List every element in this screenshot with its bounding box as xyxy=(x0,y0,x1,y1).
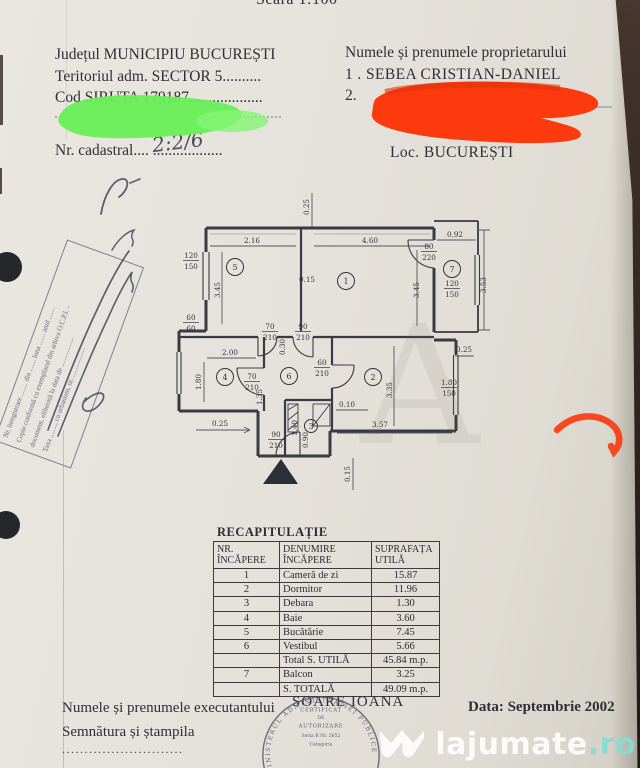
svg-text:1.35: 1.35 xyxy=(255,389,264,405)
table-cell: 11.96 xyxy=(372,583,440,597)
table-cell: Balcon xyxy=(280,668,372,682)
svg-text:4.60: 4.60 xyxy=(362,236,378,245)
faint-watermark-letter: A xyxy=(360,290,479,482)
table-cell: 3 xyxy=(214,597,280,611)
table-row: 6Vestibul5.66 xyxy=(214,640,440,654)
svg-text:0.15: 0.15 xyxy=(343,466,352,482)
table-cell: 4 xyxy=(214,611,280,625)
room-number: 7 xyxy=(444,261,461,278)
svg-text:7: 7 xyxy=(449,265,454,274)
cadastral-label: Nr. cadastral.... xyxy=(55,142,153,159)
col-header-suprafata: SUPRAFAȚAUTILĂ xyxy=(372,542,440,569)
dimension-label: 60210 xyxy=(314,358,330,378)
table-cell: Baie xyxy=(280,611,372,625)
svg-text:0.90: 0.90 xyxy=(301,432,310,448)
table-row: 4Baie3.60 xyxy=(214,611,440,625)
owner-2: 2. xyxy=(345,85,567,107)
svg-text:0.30: 0.30 xyxy=(278,339,287,355)
dimension-label: 0.92 xyxy=(447,230,463,239)
svg-text:DE: DE xyxy=(317,715,324,721)
table-cell: 2 xyxy=(214,583,280,597)
svg-text:0.92: 0.92 xyxy=(447,230,463,239)
svg-text:210: 210 xyxy=(263,333,277,342)
svg-text:Seria B Nr. 2652: Seria B Nr. 2652 xyxy=(302,733,341,739)
svg-text:4: 4 xyxy=(222,373,227,382)
table-cell: 3.60 xyxy=(372,611,440,625)
svg-text:1.80: 1.80 xyxy=(194,374,203,390)
table-cell xyxy=(214,654,280,668)
dimension-label: 0.25 xyxy=(302,199,311,215)
table-cell: Dormitor xyxy=(280,583,372,597)
dimension-label: 90210 xyxy=(295,322,311,342)
svg-text:2.16: 2.16 xyxy=(244,236,260,245)
svg-text:150: 150 xyxy=(184,262,198,271)
table-cell: 1.30 xyxy=(372,597,440,611)
svg-text:120: 120 xyxy=(184,251,198,260)
header-right: Numele și prenumele proprietarului 1 . S… xyxy=(345,42,567,107)
date-label: Data: Septembrie 2002 xyxy=(468,699,615,716)
scale-label: Scara 1:100 xyxy=(256,0,337,9)
svg-text:AUTORIZARE: AUTORIZARE xyxy=(298,724,344,730)
dimension-label: 0.15 xyxy=(343,466,352,482)
col-header-denumire: DENUMIREÎNCĂPERE xyxy=(280,542,372,569)
dimension-label: 80220 xyxy=(421,242,437,262)
table-row: Total S. UTILĂ45.84 m.p. xyxy=(214,654,440,668)
siruta-line: Cod SIRUTA 179187................... xyxy=(55,87,275,109)
entrance-triangle-marker xyxy=(263,459,298,484)
table-cell: 1 xyxy=(214,569,280,583)
svg-text:0.10: 0.10 xyxy=(339,400,355,409)
table-cell: Debara xyxy=(280,597,372,611)
paper-edge-shadow xyxy=(0,168,2,194)
table-cell: Bucătărie xyxy=(280,625,372,639)
svg-text:0.25: 0.25 xyxy=(302,199,311,215)
room-number: 5 xyxy=(227,259,244,276)
dimension-label: 3.53 xyxy=(479,277,488,293)
dimension-label: 1.40 xyxy=(290,420,299,436)
svg-text:70: 70 xyxy=(265,322,275,331)
watermark-text: lajumate.ro xyxy=(435,727,636,762)
table-cell: 5.66 xyxy=(372,640,440,654)
dimension-label: 70210 xyxy=(262,322,278,342)
svg-text:70: 70 xyxy=(247,372,257,381)
site-watermark: lajumate.ro xyxy=(377,726,636,762)
table-cell: 7 xyxy=(214,668,280,682)
svg-text:3: 3 xyxy=(308,422,313,431)
room-number: 6 xyxy=(281,368,298,385)
svg-text:1.40: 1.40 xyxy=(290,420,299,436)
dimension-label: 1.80 xyxy=(194,374,203,390)
table-cell: 45.84 m.p. xyxy=(372,654,440,668)
owner-name: 1 . SEBEA CRISTIAN-DANIEL xyxy=(345,64,567,86)
table-cell: 3.25 xyxy=(372,668,440,682)
col-header-nr: NR.ÎNCĂPERE xyxy=(214,542,280,569)
paper-edge-shadow xyxy=(0,55,3,125)
dimension-label: 0.15 xyxy=(299,275,315,284)
svg-text:1: 1 xyxy=(343,277,348,286)
dimension-label: 0.25 xyxy=(212,419,228,428)
svg-text:3.53: 3.53 xyxy=(479,277,488,293)
svg-text:80: 80 xyxy=(424,242,434,251)
svg-text:210: 210 xyxy=(296,333,310,342)
svg-text:90: 90 xyxy=(298,322,308,331)
recap-table: NR.ÎNCĂPERE DENUMIREÎNCĂPERE SUPRAFAȚAUT… xyxy=(213,541,440,697)
table-cell: 5 xyxy=(214,625,280,639)
room-number: 1 xyxy=(338,273,355,290)
owner-label: Numele și prenumele proprietarului xyxy=(345,42,567,64)
svg-text:60: 60 xyxy=(186,324,196,333)
svg-text:2.00: 2.00 xyxy=(222,348,238,357)
svg-text:60: 60 xyxy=(317,358,327,367)
svg-text:90: 90 xyxy=(271,430,281,439)
locality: Loc. BUCUREȘTI xyxy=(390,144,514,162)
svg-text:CERTIFICAT: CERTIFICAT xyxy=(300,707,341,713)
table-row: 7Balcon3.25 xyxy=(214,668,440,682)
room-number: 4 xyxy=(217,369,234,386)
svg-text:60: 60 xyxy=(186,313,196,322)
table-cell: Total S. UTILĂ xyxy=(280,654,372,668)
table-row: 2Dormitor11.96 xyxy=(214,583,440,597)
svg-text:220: 220 xyxy=(422,253,436,262)
recap-title: RECAPITULAȚIE xyxy=(217,525,439,540)
svg-text:120: 120 xyxy=(445,279,459,288)
table-cell: 7.45 xyxy=(372,625,440,639)
svg-text:0.15: 0.15 xyxy=(299,275,315,284)
svg-text:6: 6 xyxy=(286,372,291,381)
dimension-label: 2.16 xyxy=(244,236,260,245)
svg-text:5: 5 xyxy=(232,263,237,272)
dimension-label: 0.10 xyxy=(339,400,355,409)
dimension-label: 1.35 xyxy=(255,389,264,405)
table-cell: Cameră de zi xyxy=(280,569,372,583)
table-cell: 6 xyxy=(214,640,280,654)
svg-text:3.45: 3.45 xyxy=(213,282,222,298)
lajumate-logo-icon xyxy=(377,726,429,762)
svg-text:Categoria: Categoria xyxy=(310,741,333,747)
svg-text:0.25: 0.25 xyxy=(212,419,228,428)
stamp-center-text: CERTIFICAT DE AUTORIZARE Seria B Nr. 265… xyxy=(298,707,344,747)
table-cell: 15.87 xyxy=(372,569,440,583)
table-cell: Vestibul xyxy=(280,640,372,654)
table-row: 5Bucătărie7.45 xyxy=(214,625,440,639)
teritoriu-line: Teritoriul adm. SECTOR 5.......... xyxy=(55,66,275,88)
header-left: Județul MUNICIPIU BUCUREȘTI Teritoriul a… xyxy=(55,44,275,109)
dimension-label: 3.45 xyxy=(213,282,222,298)
dimension-label: 0.90 xyxy=(301,432,310,448)
photo-of-document: Scara 1:100 Județul MUNICIPIU BUCUREȘTI … xyxy=(0,0,640,768)
svg-text:210: 210 xyxy=(269,441,283,450)
svg-text:210: 210 xyxy=(315,369,329,378)
dimension-label: 0.30 xyxy=(278,339,287,355)
dimension-label: 2.00 xyxy=(222,348,238,357)
signature-dotted-line: ........................... xyxy=(62,742,184,757)
judet-line: Județul MUNICIPIU BUCUREȘTI xyxy=(55,44,275,66)
table-row: 1Cameră de zi15.87 xyxy=(214,569,440,583)
recap-section: RECAPITULAȚIE NR.ÎNCĂPERE DENUMIREÎNCĂPE… xyxy=(213,525,439,697)
dimension-label: 4.60 xyxy=(362,236,378,245)
dimension-label: 120150 xyxy=(183,251,199,271)
table-row: 3Debara1.30 xyxy=(214,597,440,611)
